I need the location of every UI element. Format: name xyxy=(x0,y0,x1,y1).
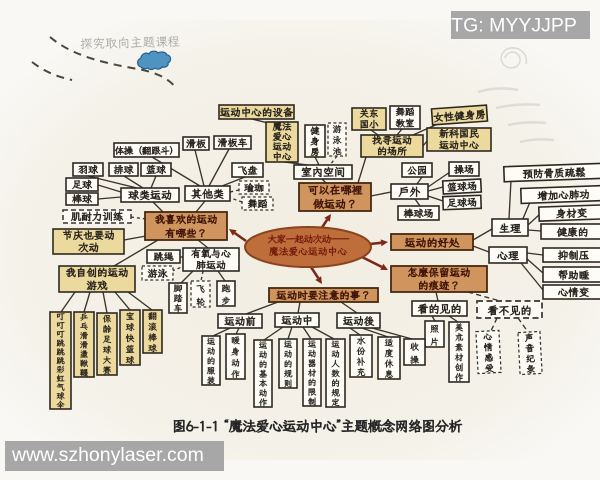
svg-text:TG: MYYJJPP: TG: MYYJJPP xyxy=(451,15,577,37)
svg-text:www.szhonylaser.com: www.szhonylaser.com xyxy=(11,444,204,466)
